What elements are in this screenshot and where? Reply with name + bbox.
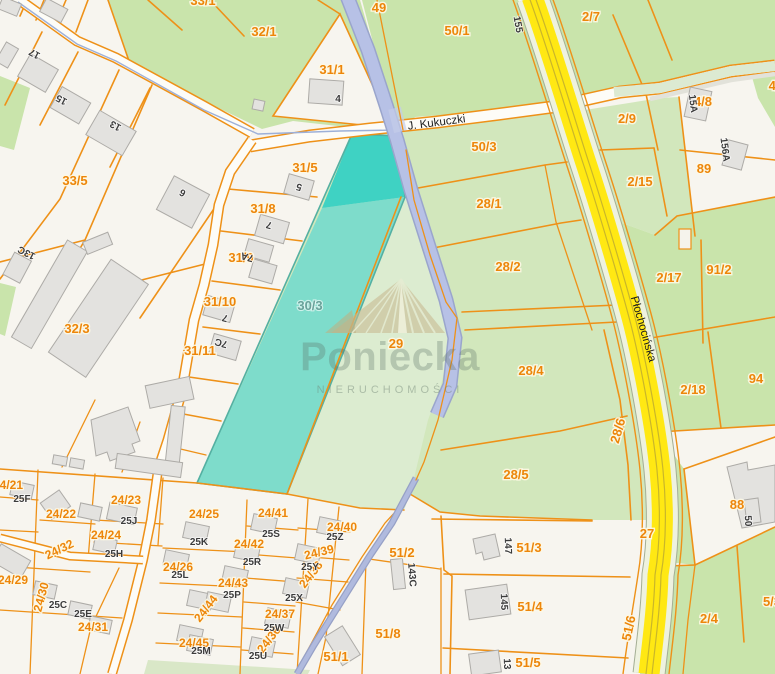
svg-text:24/24: 24/24 [91, 528, 121, 542]
svg-text:49: 49 [372, 0, 386, 15]
svg-text:2/9: 2/9 [618, 111, 636, 126]
svg-text:31/1: 31/1 [319, 62, 344, 77]
svg-text:4/: 4/ [769, 78, 775, 93]
svg-text:51/2: 51/2 [389, 545, 414, 560]
svg-text:25C: 25C [49, 600, 67, 611]
svg-text:24/25: 24/25 [189, 507, 219, 521]
svg-text:33/5: 33/5 [62, 173, 87, 188]
svg-text:25U: 25U [249, 651, 267, 662]
svg-text:28/5: 28/5 [503, 467, 528, 482]
svg-text:28/2: 28/2 [495, 259, 520, 274]
svg-text:25F: 25F [13, 494, 30, 505]
svg-text:25Z: 25Z [326, 532, 343, 543]
svg-text:Poniecka: Poniecka [300, 335, 480, 379]
svg-text:2/4: 2/4 [700, 611, 719, 626]
svg-text:89: 89 [697, 161, 711, 176]
svg-text:2/18: 2/18 [680, 382, 705, 397]
svg-text:31/11: 31/11 [184, 343, 216, 358]
svg-text:24/37: 24/37 [265, 607, 295, 621]
svg-text:4: 4 [335, 94, 341, 105]
svg-text:28/1: 28/1 [476, 196, 501, 211]
svg-text:31/10: 31/10 [204, 294, 237, 309]
svg-text:27: 27 [640, 526, 654, 541]
svg-text:147: 147 [502, 537, 514, 554]
svg-text:24/43: 24/43 [218, 576, 248, 590]
svg-text:13: 13 [501, 658, 512, 670]
svg-text:31/8: 31/8 [250, 201, 275, 216]
svg-text:25R: 25R [243, 557, 262, 568]
svg-text:25L: 25L [171, 570, 188, 581]
svg-text:24/29: 24/29 [0, 573, 28, 587]
svg-text:51/5: 51/5 [515, 655, 540, 670]
svg-text:2/15: 2/15 [627, 174, 652, 189]
svg-text:24/22: 24/22 [46, 507, 76, 521]
svg-text:25H: 25H [105, 549, 123, 560]
svg-text:24/21: 24/21 [0, 478, 23, 492]
svg-text:50/3: 50/3 [471, 139, 496, 154]
svg-text:25W: 25W [264, 623, 285, 634]
svg-text:24/42: 24/42 [234, 537, 264, 551]
svg-text:25J: 25J [121, 516, 138, 527]
svg-text:33/1: 33/1 [190, 0, 215, 8]
svg-text:2/17: 2/17 [656, 270, 681, 285]
svg-text:15A: 15A [686, 94, 699, 114]
svg-text:50/1: 50/1 [444, 23, 469, 38]
svg-text:51/8: 51/8 [375, 626, 400, 641]
svg-text:143C: 143C [405, 563, 418, 588]
svg-text:31/5: 31/5 [292, 160, 317, 175]
svg-text:25K: 25K [190, 537, 209, 548]
svg-text:24/23: 24/23 [111, 493, 141, 507]
svg-text:5/3: 5/3 [763, 594, 775, 609]
svg-text:51/3: 51/3 [516, 540, 541, 555]
svg-text:25M: 25M [191, 646, 210, 657]
svg-text:25Y: 25Y [301, 562, 319, 573]
svg-text:NIERUCHOMOŚCI: NIERUCHOMOŚCI [317, 383, 464, 396]
svg-text:24/31: 24/31 [78, 620, 108, 634]
svg-text:94: 94 [749, 371, 764, 386]
svg-text:51/1: 51/1 [323, 649, 348, 664]
svg-text:91/2: 91/2 [706, 262, 731, 277]
svg-text:25P: 25P [223, 590, 241, 601]
svg-text:50: 50 [742, 515, 754, 527]
svg-text:32/1: 32/1 [251, 24, 276, 39]
svg-text:28/4: 28/4 [518, 363, 544, 378]
svg-text:145: 145 [498, 593, 510, 610]
svg-text:24/41: 24/41 [258, 506, 288, 520]
svg-text:25S: 25S [262, 529, 280, 540]
svg-text:88: 88 [730, 497, 744, 512]
svg-text:30/3: 30/3 [297, 298, 322, 313]
svg-text:51/4: 51/4 [517, 599, 543, 614]
svg-text:25X: 25X [285, 593, 303, 604]
svg-text:25E: 25E [74, 609, 92, 620]
svg-text:2/7: 2/7 [582, 9, 600, 24]
svg-text:32/3: 32/3 [64, 321, 89, 336]
